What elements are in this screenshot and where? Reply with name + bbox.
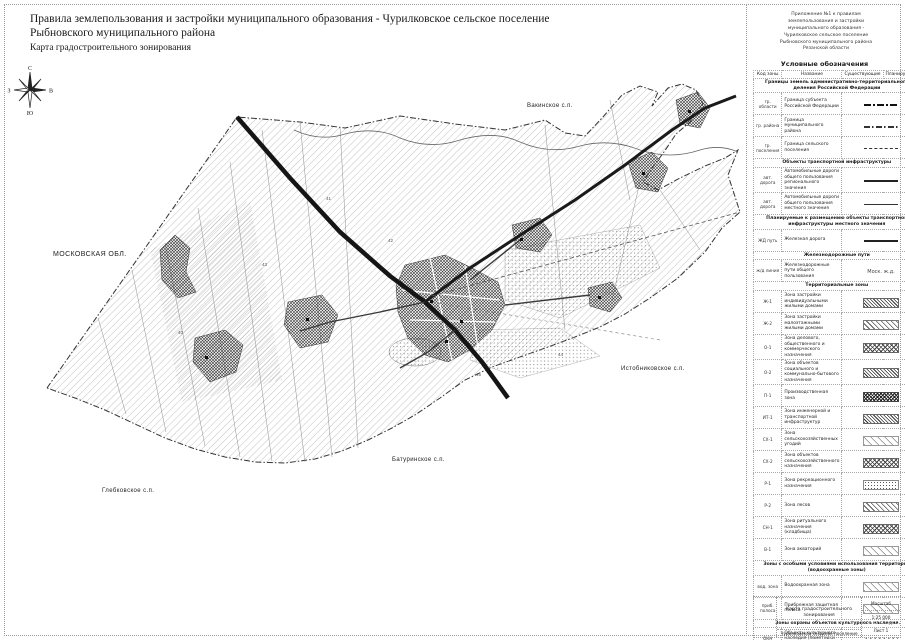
legend-row-code: Р-2 (754, 495, 782, 517)
legend-row-name: Зона объектов сельскохозяйственного назн… (782, 451, 842, 473)
legend-col-name: Название (782, 71, 842, 79)
legend-swatch-hatch-dense (863, 368, 899, 378)
legend-row-code: гр. области (754, 93, 782, 115)
sheet-label: Лист (874, 628, 885, 633)
legend-row-code: СН-1 (754, 517, 782, 539)
legend-swatch-hatch-light (863, 546, 899, 556)
legend-section-header: Железнодорожные пути (754, 251, 905, 260)
map-region-label: Глебковское с.п. (102, 488, 154, 494)
parcel-number: 41 (326, 196, 331, 201)
legend-col-existing: Существующие (842, 71, 883, 79)
legend-swatch-cross (863, 524, 899, 534)
legend-row: ЖД путьЖелезная дорога (754, 229, 905, 251)
legend-row-code: Р-1 (754, 473, 782, 495)
legend-section-header: Объекты транспортной инфраструктуры (754, 159, 905, 168)
legend-swatch-line-dash (864, 148, 898, 149)
legend-row: СХ-1Зона сельскохозяйственных угодий (754, 429, 905, 451)
legend-table-body: Границы земель административно-территори… (754, 79, 905, 640)
legend-row: вод. зонаВодоохранная зона (754, 575, 905, 597)
legend-row: В-1Зона акваторий (754, 539, 905, 561)
legend-section-header: Границы земель административно-территори… (754, 79, 905, 93)
legend-swatch-hatch-med (863, 502, 899, 512)
parcel-number: 42 (388, 238, 393, 243)
legend-row-code: гр. района (754, 115, 782, 137)
legend-swatch-hatch-light (863, 436, 899, 446)
parcel-number: 45 (476, 372, 481, 377)
map-region-label: МОСКОВСКАЯ ОБЛ. (53, 251, 127, 258)
legend-section-header: Планируемые к размещению объекты транспо… (754, 215, 905, 229)
legend-row: О-2Зона объектов социального и коммуналь… (754, 360, 905, 385)
corner-stamp-line: землепользования и застройки (761, 19, 891, 26)
legend-row-name: Граница субъекта Российской Федерации (782, 93, 842, 115)
legend-row-name: Зона делового, общественного и коммерчес… (782, 335, 842, 360)
legend-swatch-label: Моск. ж.д. (864, 269, 898, 275)
legend-row-code: СХ-2 (754, 451, 782, 473)
legend-swatch-hatch-light (863, 582, 899, 592)
legend-row-name: Граница муниципального района (782, 115, 842, 137)
legend-row-name: Зона ритуального назначения (кладбища) (782, 517, 842, 539)
legend-row: О-1Зона делового, общественного и коммер… (754, 335, 905, 360)
map-area: МОСКОВСКАЯ ОБЛ.Вакинское с.п.Истобниковс… (0, 0, 748, 640)
legend-section-header: Территориальные зоны (754, 282, 905, 291)
sheet-value: 1 (886, 628, 889, 633)
map-region-label: Вакинское с.п. (527, 103, 573, 109)
parcel-number: 44 (558, 352, 563, 357)
legend-row: авт. дорогаАвтомобильные дороги общего п… (754, 168, 905, 193)
legend-row-code: Ж-2 (754, 313, 782, 335)
map-sheet: Правила землепользования и застройки мун… (0, 0, 905, 640)
legend-row: ИТ-1Зона инженерной и транспортной инфра… (754, 407, 905, 429)
legend-row-name: Железная дорога (782, 229, 842, 251)
legend-swatch-cross (863, 343, 899, 353)
legend-row-code: ж/д линия (754, 260, 782, 282)
legend-heading: Условные обозначения (747, 60, 902, 68)
corner-stamp-line: Рязанской области (761, 46, 891, 53)
legend-swatch-line-thick (864, 180, 898, 182)
title-block-doc: Карта градостроительного зонирования (777, 597, 861, 629)
legend-swatch-hatch-dense (863, 414, 899, 424)
legend-row-code: ИТ-1 (754, 407, 782, 429)
title-block-revisions (754, 597, 777, 637)
legend-row: Ж-2Зона застройки малоэтажными жилыми до… (754, 313, 905, 335)
map-region-label: Истобниковское с.п. (621, 366, 685, 372)
legend-row: Р-1Зона рекреационного назначения (754, 473, 905, 495)
legend-row-code: ЖД путь (754, 229, 782, 251)
legend-row-code: П-1 (754, 385, 782, 407)
legend-row: П-1Производственная зона (754, 385, 905, 407)
legend-row: Ж-1Зона застройки индивидуальными жилыми… (754, 291, 905, 313)
legend-swatch-line-solid (864, 204, 898, 205)
legend-section-header: Зоны с особыми условиями использования т… (754, 561, 905, 575)
legend-row: Р-2Зона лесов (754, 495, 905, 517)
corner-stamp: Приложение №1 к правиламземлепользования… (761, 12, 891, 53)
legend-row-name: Зона застройки малоэтажными жилыми домам… (782, 313, 842, 335)
legend-col-code: Код зоны (754, 71, 782, 79)
legend-row-code: В-1 (754, 539, 782, 561)
legend-row-name: Зона объектов социального и коммунально-… (782, 360, 842, 385)
corner-stamp-line: Чурилковское сельское поселение (761, 33, 891, 40)
legend-row: гр. поселенияГраница сельского поселения (754, 137, 905, 159)
legend-row-name: Водоохранная зона (782, 575, 842, 597)
legend-col-planned: Планируемые (883, 71, 905, 79)
title-block-org: Чурилковское сельское поселение (777, 629, 861, 637)
legend-row-code: СХ-1 (754, 429, 782, 451)
legend-header-row: Код зоны Название Существующие Планируем… (754, 71, 905, 79)
scale-label: Масштаб (862, 597, 900, 611)
legend-row-name: Зона сельскохозяйственных угодий (782, 429, 842, 451)
legend-row-code: О-1 (754, 335, 782, 360)
legend-row-name: Производственная зона (782, 385, 842, 407)
legend-row: гр. районаГраница муниципального района (754, 115, 905, 137)
parcel-number: 43 (262, 262, 267, 267)
scale-value: 1:25 000 (862, 611, 900, 625)
corner-stamp-line: Приложение №1 к правилам (761, 12, 891, 19)
legend-row-name: Железнодорожные пути общего пользования (782, 260, 842, 282)
legend-swatch-line-dashdot-thick (864, 104, 898, 106)
legend-row: авт. дорогаАвтомобильные дороги общего п… (754, 193, 905, 215)
legend-row-name: Зона застройки индивидуальными жилыми до… (782, 291, 842, 313)
legend-swatch-cross-dark (863, 392, 899, 402)
legend-row-code: Ж-1 (754, 291, 782, 313)
corner-stamp-line: муниципального образования - (761, 26, 891, 33)
legend-row-code: гр. поселения (754, 137, 782, 159)
legend-row-code: авт. дорога (754, 193, 782, 215)
legend-row-name: Автомобильные дороги общего пользования … (782, 168, 842, 193)
legend-row: СХ-2Зона объектов сельскохозяйственного … (754, 451, 905, 473)
parcel-number: 40 (178, 330, 183, 335)
legend-row-name: Зона лесов (782, 495, 842, 517)
legend-row: СН-1Зона ритуального назначения (кладбищ… (754, 517, 905, 539)
legend-row-name: Зона инженерной и транспортной инфрастру… (782, 407, 842, 429)
legend-row: ж/д линияЖелезнодорожные пути общего пол… (754, 260, 905, 282)
legend-row-code: вод. зона (754, 575, 782, 597)
legend-swatch-line-thick (864, 240, 898, 242)
map-region-label: Батуринское с.п. (392, 457, 445, 463)
legend-row-code: авт. дорога (754, 168, 782, 193)
title-block-meta: Масштаб 1:25 000 Лист 1 (861, 597, 900, 637)
legend-panel: Приложение №1 к правиламземлепользования… (746, 4, 902, 636)
legend-row-name: Автомобильные дороги общего пользования … (782, 193, 842, 215)
legend-table: Код зоны Название Существующие Планируем… (753, 70, 905, 640)
legend-swatch-line-dashdot (864, 126, 898, 127)
legend-row-name: Зона акваторий (782, 539, 842, 561)
legend-row-name: Зона рекреационного назначения (782, 473, 842, 495)
legend-row-name: Граница сельского поселения (782, 137, 842, 159)
title-block: Карта градостроительного зонирования Чур… (753, 596, 901, 638)
zoning-map (0, 0, 748, 640)
legend-swatch-hatch-med (863, 320, 899, 330)
legend-swatch-cross (863, 458, 899, 468)
legend-row-code: О-2 (754, 360, 782, 385)
legend-row: гр. областиГраница субъекта Российской Ф… (754, 93, 905, 115)
legend-swatch-dots (863, 480, 899, 490)
legend-swatch-hatch-dense (863, 298, 899, 308)
